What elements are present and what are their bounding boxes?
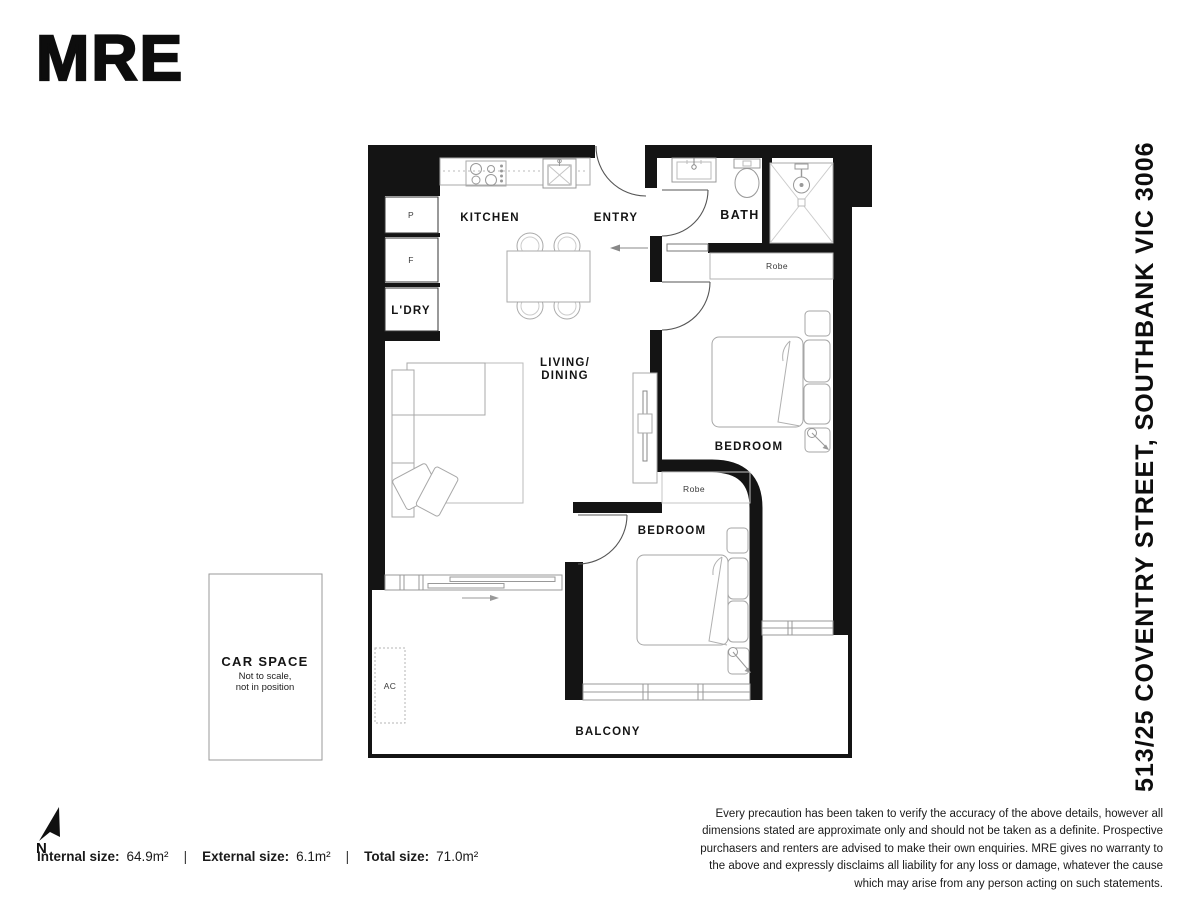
size-divider: | (346, 849, 350, 864)
tv-unit (633, 373, 657, 483)
kitchen-sink (543, 159, 576, 188)
floorplan-drawing: KITCHEN ENTRY BATH LIVING/ DINING BEDROO… (200, 135, 880, 780)
bed2 (637, 528, 751, 674)
label-pantry: P (408, 210, 414, 220)
total-size-label: Total size: (364, 849, 429, 864)
label-laundry: L'DRY (391, 305, 431, 317)
property-address: 513/25 COVENTRY STREET, SOUTHBANK VIC 30… (1131, 182, 1161, 792)
label-bedroom1: BEDROOM (715, 441, 783, 453)
label-robe2: Robe (683, 484, 705, 494)
label-living2: DINING (541, 370, 588, 382)
internal-size-value: 64.9m² (127, 849, 169, 864)
internal-size-label: Internal size: (37, 849, 120, 864)
shower (770, 163, 833, 243)
entry-door (596, 146, 646, 196)
label-carspace-note1: Not to scale, (239, 671, 292, 682)
external-size-label: External size: (202, 849, 289, 864)
bedroom2-door (578, 515, 627, 564)
living-window (385, 575, 562, 601)
label-carspace-title: CAR SPACE (221, 654, 308, 669)
size-divider: | (184, 849, 188, 864)
bed1 (712, 311, 830, 452)
bath-sink (672, 158, 716, 182)
dining-table (507, 251, 590, 302)
bedroom1-door (662, 282, 710, 330)
size-summary: Internal size:64.9m²|External size:6.1m²… (37, 849, 493, 864)
toilet (734, 159, 760, 198)
label-balcony: BALCONY (575, 726, 640, 738)
label-robe1: Robe (766, 261, 788, 271)
label-kitchen: KITCHEN (460, 212, 520, 224)
label-living1: LIVING/ (540, 357, 590, 369)
north-arrow-icon (36, 806, 70, 842)
label-bath: BATH (720, 208, 759, 222)
label-entry: ENTRY (594, 212, 639, 224)
bath-door (662, 190, 708, 236)
floorplan-page: MRE (0, 0, 1200, 900)
bedroom1-window (762, 621, 833, 635)
label-ac: AC (384, 681, 397, 691)
label-bedroom2: BEDROOM (638, 525, 706, 537)
label-fridge: F (408, 255, 414, 265)
external-size-value: 6.1m² (296, 849, 331, 864)
brand-logo: MRE (36, 26, 184, 90)
bedroom2-window (583, 684, 750, 700)
disclaimer-text: Every precaution has been taken to verif… (691, 806, 1163, 893)
label-carspace-note2: not in position (236, 682, 295, 693)
sofa-chaise (407, 363, 485, 415)
total-size-value: 71.0m² (436, 849, 478, 864)
